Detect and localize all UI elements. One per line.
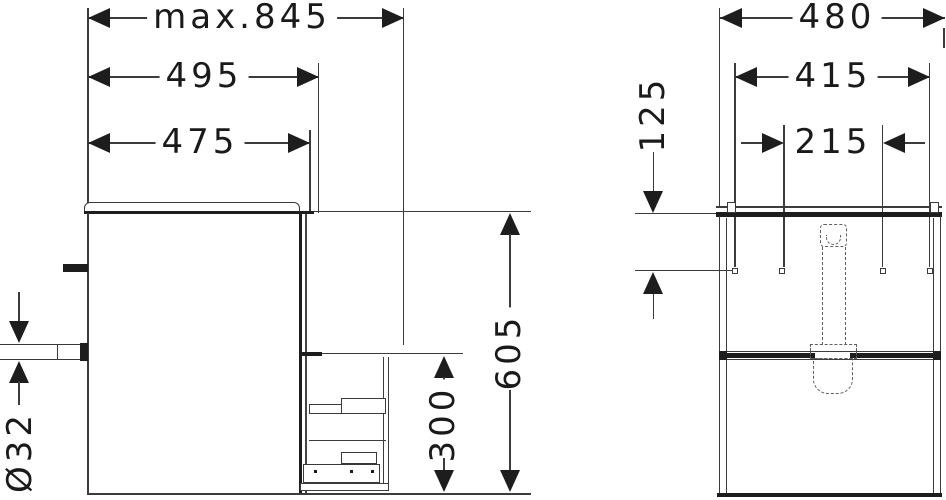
sv-console-edge [84,211,314,215]
fv-mount-hole-4 [927,268,933,274]
fv-dim-125-label: 125 [636,70,672,159]
sv-wall-bracket [63,264,88,272]
sv-drawer-screw-1 [314,470,317,473]
fv-top-plate-edge [716,206,942,207]
sv-dim-475-label: 475 [156,125,245,161]
sv-ref-top-line [314,211,531,212]
fv-dim-415-arrow-right [908,67,930,87]
sv-bottom-line [87,493,531,495]
fv-dim-480-arrow-left [720,8,742,28]
fv-mount-hole-3 [880,268,886,274]
sv-dim-605-line-bottom [509,390,510,472]
fv-fixing-tab-right [930,202,939,213]
sv-dim-32-line-bottom [18,381,19,408]
sv-dim-605-arrow-up [500,213,520,235]
sv-ext-845-right [403,8,404,345]
fv-divider-heavy-right [850,353,934,357]
sv-dim-475-arrow-right [288,133,310,153]
sv-body-back-edge [87,213,89,494]
sv-drain-pipe [0,344,86,360]
fv-ext-415-left [734,63,735,267]
fv-dim-215-line-right [905,142,925,143]
fv-bottom-edge [717,493,942,497]
fv-dim-480-label: 480 [793,0,882,36]
fv-dim-480-arrow-right [923,8,945,28]
sv-dim-845-arrow-right [382,8,404,28]
sv-drawer-divider-tick [299,352,322,356]
fv-dim-125-line-top [653,152,654,192]
fv-dim-125-line-bottom [653,294,654,319]
technical-drawing: max.845 495 475 Ø32 [0,0,946,500]
fv-siphon-pipe-left [822,247,823,345]
sv-dim-300-arrow-up [434,356,454,378]
sv-dim-32-label: Ø32 [3,405,39,499]
sv-dim-475-arrow-left [88,133,110,153]
fv-top-plate [716,212,942,217]
sv-drawer-bottom-tray [300,483,389,491]
fv-dim-125-arrow-up [643,272,663,294]
fv-siphon-pipe-right [845,247,846,345]
sv-dim-32-arrow-down [9,321,29,343]
fv-ext-480-left [719,8,720,206]
sv-dim-845-arrow-left [88,8,110,28]
fv-mount-hole-1 [732,268,738,274]
sv-dim-32-line-top [18,292,19,322]
sv-dim-32-arrow-up [9,361,29,383]
sv-drawer-front-outer [383,357,384,491]
fv-divider-heavy-left [727,353,815,357]
fv-divider-end-right [933,351,941,360]
sv-dim-300-arrow-down [434,470,454,492]
sv-drawer-rail-carriage [341,398,386,415]
fv-mount-hole-2 [779,268,785,274]
fv-fixing-tab-left [727,202,736,213]
sv-ext-back [87,8,88,204]
sv-dim-605-arrow-down [500,470,520,492]
fv-ext-415-right [929,63,930,267]
fv-dim-215-arrow-right-point [762,133,784,153]
sv-dim-605-line-top [509,234,510,314]
fv-ref-top-line [635,213,719,214]
sv-drawer-front-inner [388,357,389,491]
fv-dim-215-arrow-left-point [883,133,905,153]
sv-dim-300-label: 300 [426,380,462,469]
fv-siphon-flange [810,344,857,359]
sv-drain-pipe-end [80,343,88,361]
fv-dim-415-arrow-left [735,67,757,87]
sv-drawer-box [303,464,380,483]
sv-drawer-screw-3 [371,470,374,473]
sv-dim-495-arrow-right [297,67,319,87]
sv-dim-495-arrow-left [88,67,110,87]
sv-drawer-stop-block [341,452,377,464]
sv-drawer-mid-line [309,440,386,441]
fv-siphon-trap [813,358,853,394]
sv-dim-495-label: 495 [160,59,249,95]
fv-dim-125-arrow-down [643,191,663,213]
sv-drain-pipe-joint [57,345,58,359]
fv-dim-215-line-left [741,142,762,143]
fv-dim-215-label: 215 [789,125,878,161]
sv-drawer-screw-2 [350,470,353,473]
fv-ext-480-right-stub [943,28,944,48]
fv-dim-415-label: 415 [789,59,878,95]
sv-ref-drawer-line [322,353,463,354]
sv-dim-845-label: max.845 [147,0,337,36]
sv-dim-605-label: 605 [492,308,528,397]
fv-divider-end-left [719,351,727,360]
